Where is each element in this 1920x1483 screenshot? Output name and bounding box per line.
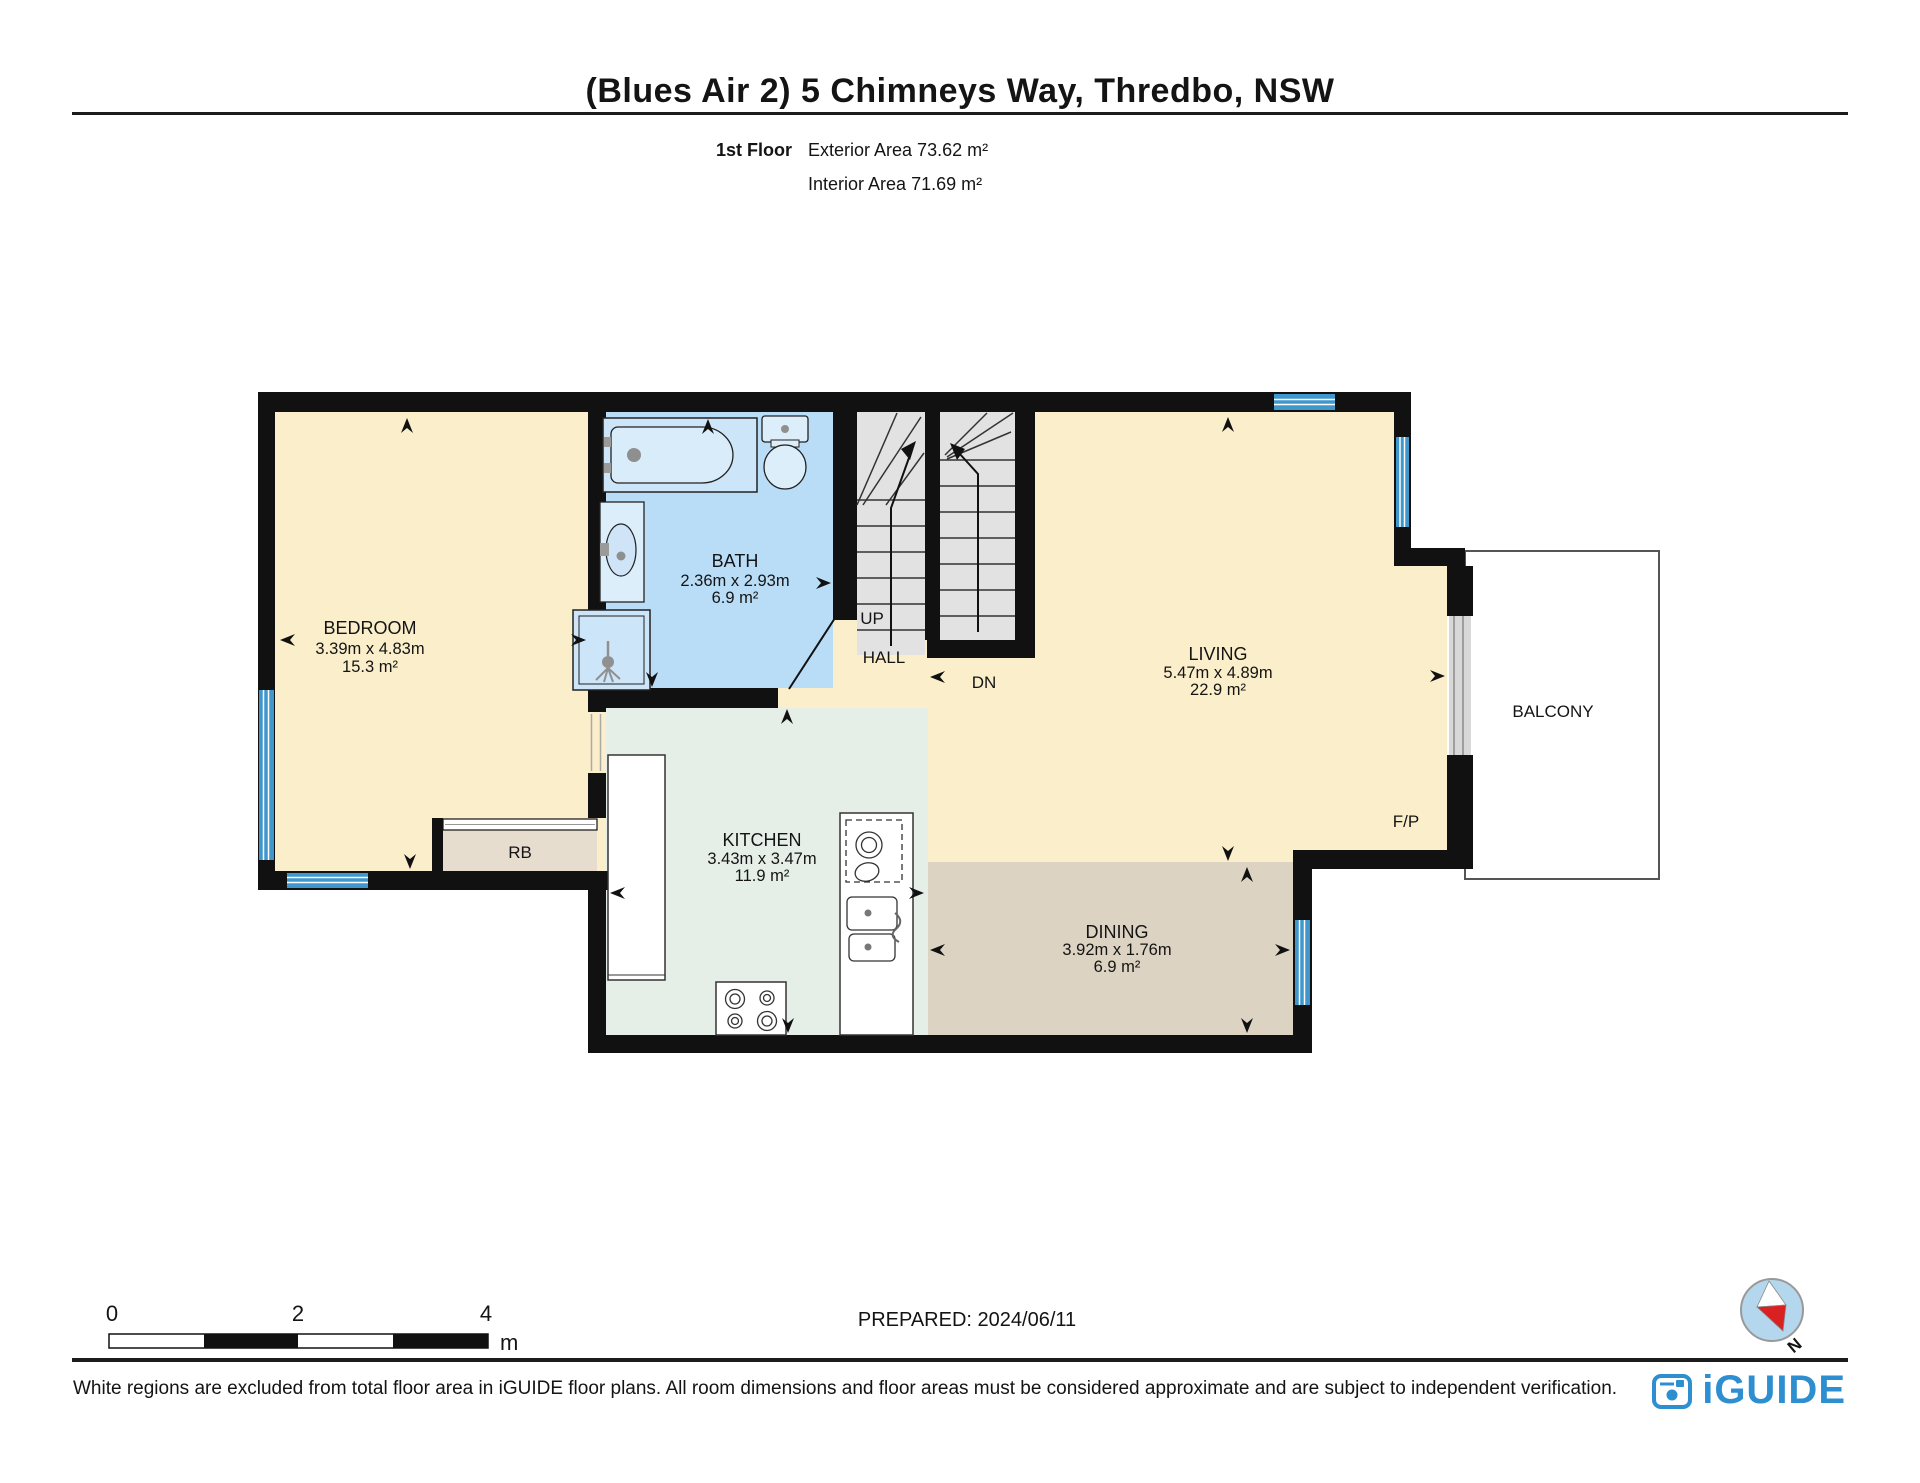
living-label: LIVING — [1188, 644, 1247, 664]
balcony-slider-door — [1449, 616, 1471, 755]
exterior-mask-bottom-left — [240, 890, 588, 1080]
scale-unit: m — [500, 1330, 518, 1355]
room-fills — [240, 378, 1659, 1080]
rb-hatch — [443, 819, 597, 830]
bedroom-area: 15.3 m² — [342, 658, 398, 676]
living-area: 22.9 m² — [1190, 681, 1246, 699]
floorplan-page: (Blues Air 2) 5 Chimneys Way, Thredbo, N… — [0, 0, 1920, 1483]
bath-label: BATH — [712, 551, 759, 571]
exterior-mask-top-right — [1411, 378, 1491, 548]
compass-icon: N — [1741, 1279, 1805, 1357]
iguide-logo-icon — [1650, 1369, 1694, 1413]
prepared-date: PREPARED: 2024/06/11 — [858, 1309, 1076, 1331]
bedroom-label: BEDROOM — [323, 618, 416, 638]
window-bedroom-bottom — [287, 873, 368, 888]
fireplace-label: F/P — [1393, 812, 1419, 831]
floor-plan-canvas: BEDROOM 3.39m x 4.83m 15.3 m² BATH 2.36m… — [0, 0, 1920, 1483]
dining-dims: 3.92m x 1.76m — [1062, 941, 1171, 959]
window-living-top — [1274, 394, 1335, 410]
bathtub-icon — [603, 418, 757, 492]
hall-label: HALL — [863, 648, 906, 667]
rb-label: RB — [508, 843, 532, 862]
bath-sink-icon — [600, 502, 644, 602]
stove-icon — [716, 982, 786, 1035]
shower-icon — [573, 610, 650, 690]
kitchen-label: KITCHEN — [722, 830, 801, 850]
dining-area: 6.9 m² — [1094, 958, 1141, 976]
scale-tick-4: 4 — [480, 1301, 492, 1326]
dining-label: DINING — [1086, 922, 1149, 942]
iguide-logo: iGUIDE — [1650, 1368, 1846, 1413]
disclaimer-text: White regions are excluded from total fl… — [73, 1378, 1617, 1400]
kitchen-area: 11.9 m² — [735, 867, 790, 885]
brand-name: iGUIDE — [1702, 1368, 1846, 1413]
balcony-label: BALCONY — [1512, 702, 1593, 721]
up-label: UP — [860, 609, 884, 628]
toilet-icon — [762, 416, 808, 489]
scale-tick-0: 0 — [106, 1301, 118, 1326]
scale-tick-2: 2 — [292, 1301, 304, 1326]
kitchen-sink-icon — [847, 897, 900, 961]
kitchen-counter-left — [608, 755, 665, 980]
kitchen-dims: 3.43m x 3.47m — [707, 850, 816, 868]
window-dining-right — [1295, 920, 1310, 1005]
exterior-mask-bottom-right — [1312, 869, 1482, 1069]
living-dims: 5.47m x 4.89m — [1163, 664, 1272, 682]
scale-bar: 0 2 4 m — [106, 1301, 518, 1355]
bath-area: 6.9 m² — [712, 589, 759, 607]
window-bedroom-left — [259, 690, 274, 860]
dn-label: DN — [972, 673, 997, 692]
footer-divider — [72, 1358, 1848, 1362]
kitchen-counter-right — [840, 813, 913, 1035]
bath-dims: 2.36m x 2.93m — [680, 572, 789, 590]
window-living-right — [1396, 437, 1409, 527]
bedroom-dims: 3.39m x 4.83m — [315, 640, 424, 658]
